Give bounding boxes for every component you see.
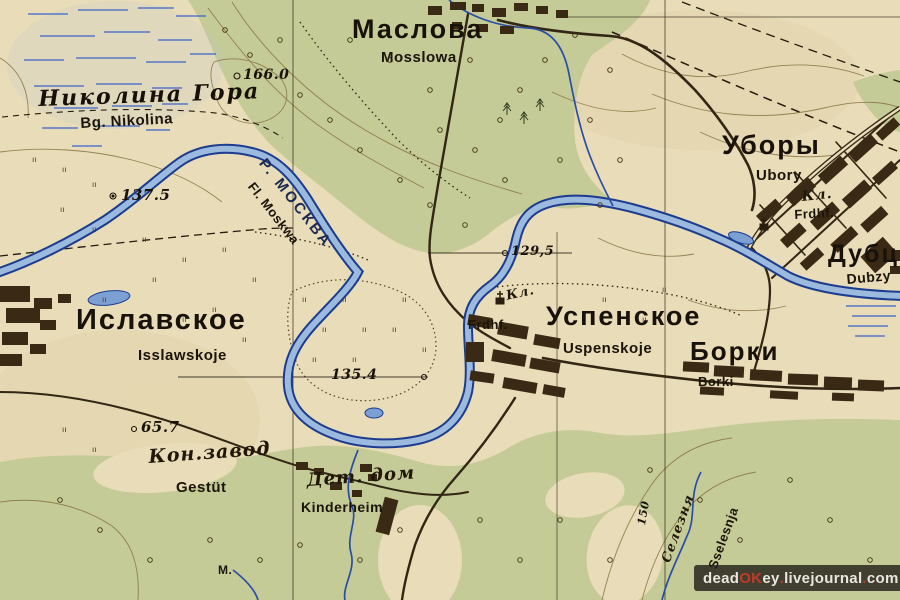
label-gestuet: Gestüt [176, 480, 227, 495]
label-ubory-frdhf: Frdhf. [794, 206, 834, 221]
label-ubory-kl: Кл. [801, 187, 833, 204]
label-height-135: 135.4 [331, 368, 377, 382]
label-m: М. [218, 564, 232, 576]
label-islavskoje: Иславское [76, 306, 247, 335]
label-height-65: 65.7 [141, 420, 180, 435]
label-uspenskoje-frdhf: Frdhf. [468, 318, 508, 331]
label-uspenskoje-kl: Кл. [505, 284, 536, 303]
label-nikolina-latin: Bg. Nikolina [80, 111, 173, 131]
label-maslova-latin: Mosslowa [381, 50, 457, 65]
label-sselesnja-latin: Sselesnja [706, 505, 740, 570]
label-kon-zavod: Кон.завод [148, 439, 271, 466]
label-maslova: Маслова [352, 16, 483, 43]
label-contour-150: 150 [636, 500, 651, 526]
watermark: deadOKey.livejournal.com [694, 565, 900, 591]
label-uspenskoje-latin: Uspenskoje [563, 341, 652, 356]
label-dubzy: Дубцы [828, 242, 900, 267]
watermark-segment: ey [762, 570, 779, 587]
label-height-137: 137.5 [121, 188, 170, 203]
label-borki-latin: Borki [698, 375, 734, 388]
watermark-segment: OK [739, 570, 762, 587]
label-height-129: 129,5 [511, 245, 554, 258]
watermark-segment: com [867, 570, 899, 587]
label-islavskoje-latin: Isslawskoje [138, 348, 227, 363]
label-sselesnja: Селезня [660, 493, 697, 565]
label-uspenskoje: Успенское [546, 303, 701, 330]
label-kinderheim: Kinderheim [301, 500, 383, 514]
label-height-166: 166.0 [243, 68, 289, 82]
label-nikolina-gora: Николина Гора [38, 80, 261, 110]
label-ubory: Уборы [722, 132, 821, 159]
label-ubory-latin: Ubory [756, 168, 802, 183]
map-canvas: ıııııı ıııııı ıııııı ıııııı ıııııı ııııı… [0, 0, 900, 600]
label-borki: Борки [690, 338, 779, 364]
label-det-dom: Дет. дом [306, 464, 416, 490]
map-labels-layer: МасловаMosslowaНиколина ГораBg. Nikolina… [0, 0, 900, 600]
watermark-segment: dead [703, 570, 739, 587]
watermark-segment: livejournal [784, 570, 862, 587]
label-dubzy-latin: Dubzy [846, 268, 892, 286]
